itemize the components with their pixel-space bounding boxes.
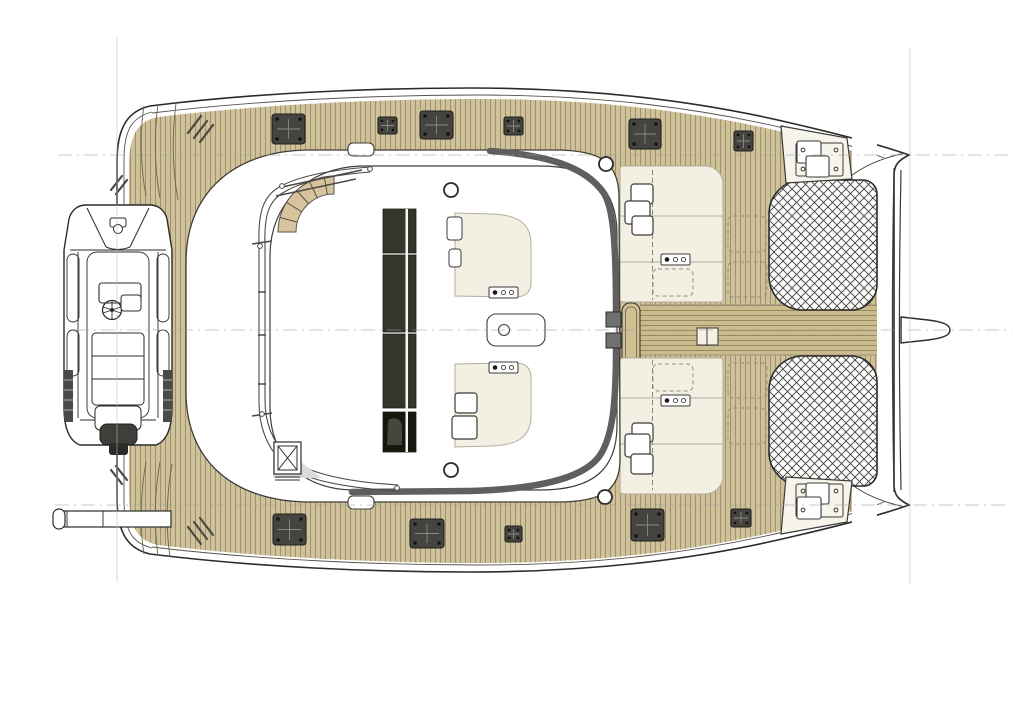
- hatch-bolt: [517, 537, 520, 540]
- hatch-bolt: [507, 130, 510, 133]
- hatch-bolt: [518, 130, 521, 133]
- hatch-bolt: [507, 120, 510, 123]
- control-button-filled: [493, 365, 498, 370]
- hatch-bolt: [299, 538, 303, 542]
- sunroof-panel-1: [383, 209, 416, 253]
- windlass-drum-4: [797, 497, 821, 519]
- hatch-bolt: [298, 117, 302, 121]
- deck-light-1: [444, 183, 458, 197]
- hatch-bolt: [654, 122, 658, 126]
- hatch-bolt: [413, 541, 417, 545]
- hatch-bolt: [508, 537, 511, 540]
- hatch-bolt: [392, 129, 395, 132]
- windlass-drum-2: [806, 156, 829, 177]
- hatch-bolt: [276, 538, 280, 542]
- fly-lounge-panel-top: [455, 213, 531, 297]
- fly-step-pad-2: [449, 249, 461, 267]
- hatch-bolt: [748, 146, 751, 149]
- sunroof-panel-3: [383, 334, 416, 408]
- hatch-bolt: [423, 114, 427, 118]
- hatch-bolt: [437, 522, 441, 526]
- helm-seat-silhouette: [387, 418, 402, 445]
- control-button-filled: [493, 290, 498, 295]
- hatch-bolt: [518, 120, 521, 123]
- flybridge-winch-1: [455, 393, 477, 413]
- hatch-bolt: [437, 541, 441, 545]
- hatch-bolt: [746, 512, 749, 515]
- hatch-bolt: [508, 529, 511, 532]
- deck-hatch-3: [420, 111, 453, 139]
- winch-control-panel-3: [661, 254, 690, 265]
- hatch-bolt: [748, 134, 751, 137]
- band-hinge-block-lower: [606, 333, 621, 348]
- foredeck-winch-6: [631, 454, 653, 474]
- yacht-deck-plan: [0, 0, 1024, 723]
- deck-hatch-7: [273, 514, 306, 545]
- hatch-bolt: [734, 522, 737, 525]
- hatch-bolt: [737, 134, 740, 137]
- hatch-bolt: [275, 117, 279, 121]
- hardtop-roof-outline: [270, 166, 617, 490]
- hatch-bolt: [299, 517, 303, 521]
- hatch-bolt: [517, 529, 520, 532]
- hatch-bolt: [298, 137, 302, 141]
- hatch-bolt: [381, 129, 384, 132]
- hatch-bolt: [392, 120, 395, 123]
- hatch-bolt: [275, 137, 279, 141]
- side-step-tab-bottom: [348, 496, 374, 509]
- sunroof-panel-2: [383, 255, 416, 332]
- winch-control-panel-4: [661, 395, 690, 406]
- control-button-filled: [665, 398, 670, 403]
- hatch-bolt: [632, 122, 636, 126]
- fly-step-pad-1: [447, 217, 462, 240]
- hatch-bolt: [737, 146, 740, 149]
- deck-hatch-6: [734, 131, 753, 151]
- hatch-bolt: [634, 512, 638, 516]
- control-button-filled: [665, 257, 670, 262]
- tender-benches: [92, 333, 144, 405]
- deck-fitting-box: [697, 328, 718, 345]
- winch-control-panel-1: [489, 287, 518, 298]
- flybridge-group: [186, 143, 690, 509]
- davit-pole: [53, 509, 171, 529]
- deck-hatch-10: [631, 509, 664, 541]
- tender-helm-seat: [121, 295, 141, 311]
- deck-light-4: [598, 490, 612, 504]
- deck-plan-drawing: [0, 0, 1024, 723]
- deck-hatch-4: [504, 117, 523, 135]
- hatch-bolt: [381, 120, 384, 123]
- winch-control-panel-2: [489, 362, 518, 373]
- hatch-bolt: [654, 142, 658, 146]
- hatch-bolt: [634, 534, 638, 538]
- hatch-bolt: [423, 132, 427, 136]
- hatch-bolt: [657, 534, 661, 538]
- trampoline-net-1-mesh: [769, 180, 877, 310]
- tender-bow-cleat: [114, 225, 123, 234]
- hatch-bolt: [446, 114, 450, 118]
- hatch-bolt: [734, 512, 737, 515]
- flybridge-winch-2: [452, 416, 477, 439]
- deck-hatch-2: [378, 117, 397, 134]
- trampoline-net-2-mesh: [769, 356, 877, 486]
- hatch-bolt: [446, 132, 450, 136]
- deck-light-2: [444, 463, 458, 477]
- hatch-bolt: [413, 522, 417, 526]
- foredeck-winch-3: [632, 216, 653, 235]
- hatch-bolt: [632, 142, 636, 146]
- hatch-bolt: [746, 522, 749, 525]
- deck-hatch-9: [505, 526, 522, 542]
- deck-light-3: [599, 157, 613, 171]
- deck-hatch-5: [629, 119, 661, 149]
- deck-hatch-8: [410, 519, 444, 548]
- deck-hatch-1: [272, 114, 305, 144]
- hatch-bolt: [276, 517, 280, 521]
- side-step-tab-top: [348, 143, 374, 156]
- hatch-bolt: [657, 512, 661, 516]
- deck-hatch-11: [731, 509, 751, 527]
- band-hinge-block-upper: [606, 312, 621, 327]
